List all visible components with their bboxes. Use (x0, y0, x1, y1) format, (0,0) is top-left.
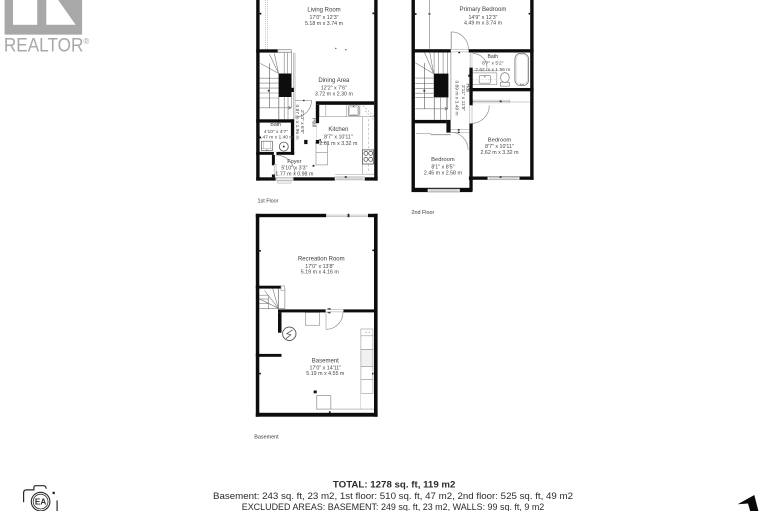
svg-text:EA: EA (35, 498, 46, 507)
svg-text:Dining Area: Dining Area (318, 78, 350, 84)
svg-text:REALTOR: REALTOR (4, 34, 84, 56)
svg-text:TOTAL: 1278 sq. ft, 119 m2: TOTAL: 1278 sq. ft, 119 m2 (333, 478, 456, 489)
svg-text:1.77 m x 0.98 m: 1.77 m x 0.98 m (275, 171, 314, 177)
svg-text:Foyer: Foyer (287, 159, 301, 165)
svg-text:3.72 m x 2.30 m: 3.72 m x 2.30 m (315, 91, 354, 97)
svg-text:Hall: Hall (310, 118, 316, 127)
svg-text:4.49 m x 3.74 m: 4.49 m x 3.74 m (464, 21, 503, 27)
svg-text:1st Floor: 1st Floor (258, 198, 279, 204)
svg-text:1.47 m x 1.40 m: 1.47 m x 1.40 m (258, 135, 293, 141)
svg-text:Hall: Hall (465, 84, 471, 93)
svg-text:2.62 m x 3.32 m: 2.62 m x 3.32 m (481, 150, 520, 156)
svg-text:2.45 m x 2.58 m: 2.45 m x 2.58 m (424, 171, 463, 177)
svg-text:Bedroom: Bedroom (488, 137, 512, 143)
svg-text:Basement: Basement (312, 359, 339, 365)
svg-text:2nd Floor: 2nd Floor (412, 210, 435, 216)
svg-text:Bedroom: Bedroom (431, 157, 455, 163)
svg-text:Basement: 243 sq. ft, 23 m2, 1: Basement: 243 sq. ft, 23 m2, 1st floor: … (213, 491, 573, 501)
svg-text:5.18 m x 3.74 m: 5.18 m x 3.74 m (305, 21, 344, 27)
svg-text:5.19 m x 4.55 m: 5.19 m x 4.55 m (306, 371, 345, 377)
svg-text:Basement: Basement (254, 434, 279, 440)
svg-text:Living Room: Living Room (307, 7, 340, 13)
svg-text:Bath: Bath (487, 54, 498, 60)
svg-text:17'0" x 12'3": 17'0" x 12'3" (309, 15, 338, 21)
svg-text:5.19 m x 4.16 m: 5.19 m x 4.16 m (301, 270, 340, 276)
svg-text:0.87 m x 1.96 m: 0.87 m x 1.96 m (294, 104, 300, 139)
svg-text:2.61 m x 3.32 m: 2.61 m x 3.32 m (319, 141, 358, 147)
svg-text:EXCLUDED AREAS: BASEMENT: 249: EXCLUDED AREAS: BASEMENT: 249 sq. ft, 23… (242, 502, 545, 511)
svg-text:Bath: Bath (270, 122, 281, 128)
svg-text:0.89 m x 3.49 m: 0.89 m x 3.49 m (454, 80, 460, 115)
svg-text:4'10" x 4'7": 4'10" x 4'7" (264, 129, 288, 135)
svg-text:Recreation Room: Recreation Room (298, 257, 345, 263)
svg-text:8'7" x 5'2": 8'7" x 5'2" (482, 61, 504, 67)
svg-text:Kitchen: Kitchen (328, 127, 348, 133)
svg-text:®: ® (83, 37, 89, 46)
svg-text:Primary Bedroom: Primary Bedroom (460, 7, 507, 13)
svg-text:8'7" x 10'11": 8'7" x 10'11" (324, 135, 353, 141)
svg-text:2.62 m x 1.56 m: 2.62 m x 1.56 m (475, 67, 510, 73)
